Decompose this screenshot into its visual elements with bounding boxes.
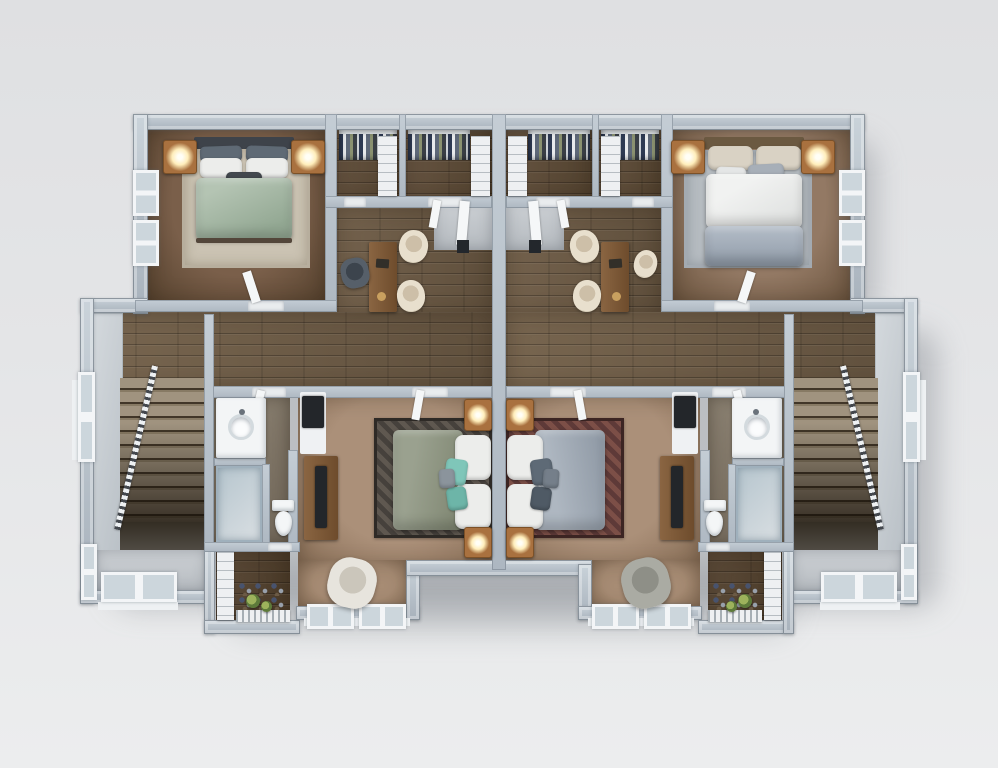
window-bedroom-topright-2 xyxy=(839,220,865,266)
closet-b-shelf xyxy=(471,136,490,196)
dresser-tv-bottomleft xyxy=(315,466,327,528)
wall-shoecloset-right-front xyxy=(698,620,794,634)
sink-right xyxy=(744,414,770,440)
lamp-bottomleft-2 xyxy=(467,532,489,554)
wall-hall-left xyxy=(206,386,492,398)
shower-left xyxy=(216,466,262,542)
closet-b-clothes-rod xyxy=(408,130,470,160)
bed-topleft-duvet xyxy=(196,178,292,240)
wall-shoecloset-left-front xyxy=(204,620,300,634)
wall-bathroom-right-toilet xyxy=(728,464,736,548)
desk-right-lamp xyxy=(612,292,621,301)
desk-right-laptop xyxy=(609,259,623,269)
faucet-right xyxy=(753,409,759,415)
wall-stair-left xyxy=(204,314,214,552)
tv-bottomright xyxy=(674,396,696,428)
toilet-right-tank xyxy=(704,500,726,511)
wall-bathroom-left-toilet xyxy=(262,464,270,548)
toilet-left-tank xyxy=(272,500,294,511)
closet-c-shelf xyxy=(508,136,527,196)
plant-left-1 xyxy=(246,594,260,608)
bed-topright-duvet xyxy=(706,174,802,228)
bed-bottomleft-accent-2 xyxy=(445,486,468,512)
wall-hall-right xyxy=(506,386,792,398)
doorway-shoecloset-right xyxy=(706,543,730,551)
plant-left-2 xyxy=(261,601,272,612)
window-bedroom-topleft-2 xyxy=(133,220,159,266)
faucet-left xyxy=(239,409,245,415)
lamp-bottomright-1 xyxy=(509,404,531,426)
shoe-rack-left xyxy=(236,610,290,622)
doorway-closet-a xyxy=(344,197,366,207)
wall-bathroom-left-divider xyxy=(214,458,266,466)
window-wing-right-2 xyxy=(901,544,917,600)
bed-topright-drape xyxy=(705,226,803,266)
shoe-shelf-right xyxy=(764,552,781,620)
wall-stair-right xyxy=(784,314,794,552)
window-bedroom-bottomright-2 xyxy=(644,604,691,629)
closet-d-shelf xyxy=(601,136,620,196)
doorway-closet-d xyxy=(632,197,654,207)
sink-left xyxy=(228,414,254,440)
wall-bathroom-right-divider xyxy=(732,458,784,466)
closet-c-clothes-rod xyxy=(528,130,590,160)
desk-right xyxy=(601,242,629,312)
lamp-topleft-2 xyxy=(294,143,322,171)
desk-left xyxy=(369,242,397,312)
wall-bedroom-topright-front xyxy=(661,300,863,312)
lamp-bottomright-2 xyxy=(509,532,531,554)
window-landing-right xyxy=(821,572,897,602)
wall-closet-cd xyxy=(592,114,599,202)
wall-shoecloset-right-side xyxy=(783,546,794,634)
desk-left-laptop xyxy=(376,259,390,269)
lamp-topright-2 xyxy=(804,143,832,171)
window-bedroom-bottomleft-2 xyxy=(359,604,406,629)
plant-right-2 xyxy=(726,601,737,612)
bed-bottomleft-accent-3 xyxy=(438,468,455,488)
lamp-topright-1 xyxy=(674,143,702,171)
shoe-shelf-left xyxy=(217,552,234,620)
floorplan-stage xyxy=(0,0,998,768)
doorway-shoecloset-left xyxy=(268,543,292,551)
window-landing-left xyxy=(101,572,177,602)
lamp-bottomleft-1 xyxy=(467,404,489,426)
bed-topleft-footboard xyxy=(196,238,292,243)
tv-bottomleft xyxy=(302,396,324,428)
plant-right-1 xyxy=(738,594,752,608)
window-wing-right-1 xyxy=(903,372,920,462)
stairwell-gap-right xyxy=(529,240,541,253)
sill-landing-right xyxy=(820,602,900,610)
shower-right xyxy=(736,466,782,542)
desk-left-lamp xyxy=(377,292,386,301)
bed-bottomright-accent-2 xyxy=(529,486,552,512)
wall-bedroom-topleft-inner xyxy=(325,114,337,312)
window-bedroom-bottomright-1 xyxy=(592,604,639,629)
shoe-rack-right xyxy=(708,610,762,622)
window-bedroom-topright-1 xyxy=(839,170,865,216)
wall-central xyxy=(492,114,506,570)
wall-bedroom-topleft-front xyxy=(135,300,337,312)
bed-bottomright-accent-3 xyxy=(542,468,559,488)
window-bedroom-topleft-1 xyxy=(133,170,159,216)
closet-a-shelf xyxy=(378,136,397,196)
stairwell-gap-left xyxy=(457,240,469,253)
lamp-topleft-1 xyxy=(166,143,194,171)
dresser-tv-bottomright xyxy=(671,466,683,528)
window-wing-left-2 xyxy=(81,544,97,600)
sill-landing-left xyxy=(98,602,178,610)
wall-closet-ab xyxy=(399,114,406,202)
window-wing-left-1 xyxy=(78,372,95,462)
